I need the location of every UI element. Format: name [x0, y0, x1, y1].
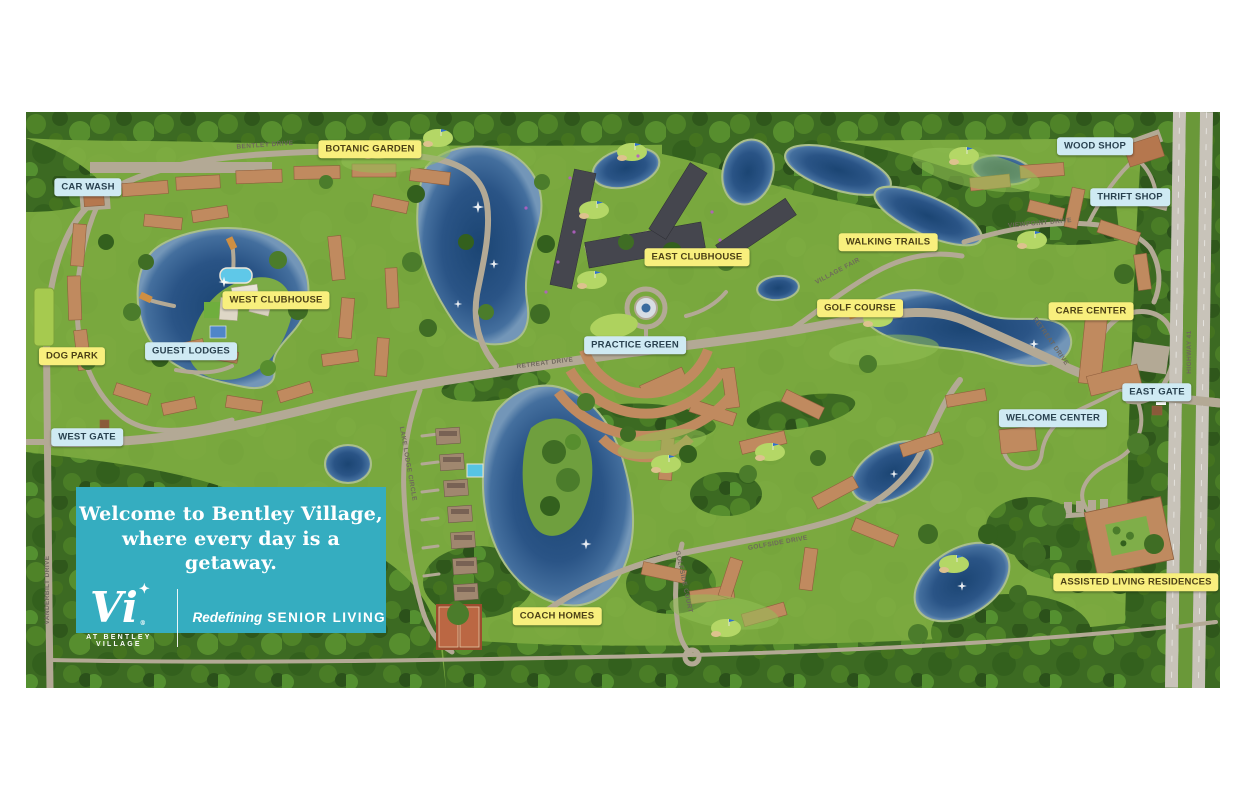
place-label: PRACTICE GREEN: [584, 336, 686, 354]
banner-headline: Welcome to Bentley Village, where every …: [76, 487, 386, 576]
place-label: THRIFT SHOP: [1090, 188, 1170, 206]
place-label: CARE CENTER: [1049, 302, 1134, 320]
banner-headline-line2: where every day is a getaway.: [76, 527, 386, 576]
place-label: GUEST LODGES: [145, 342, 237, 360]
place-label: COACH HOMES: [513, 607, 602, 625]
vi-logo: Vi ✦ ® AT BENTLEY VILLAGE: [76, 587, 162, 648]
place-label: ASSISTED LIVING RESIDENCES: [1053, 573, 1218, 591]
tagline-bold: SENIOR LIVING: [267, 610, 386, 625]
place-label: CAR WASH: [54, 178, 121, 196]
banner-bottom: Vi ✦ ® AT BENTLEY VILLAGE RedefiningSENI…: [76, 587, 386, 648]
place-label: WELCOME CENTER: [999, 409, 1107, 427]
welcome-banner: Welcome to Bentley Village, where every …: [76, 487, 386, 633]
place-label: GOLF COURSE: [817, 299, 903, 317]
vi-logo-text: Vi: [90, 583, 138, 632]
place-label: WEST GATE: [51, 428, 123, 446]
vi-logo-mark: Vi ✦ ®: [90, 587, 148, 629]
banner-divider: [177, 589, 178, 647]
tagline-italic: Redefining: [193, 610, 263, 625]
place-label: WOOD SHOP: [1057, 137, 1133, 155]
place-label: EAST CLUBHOUSE: [645, 248, 750, 266]
vi-logo-subtext: AT BENTLEY VILLAGE: [76, 634, 162, 648]
community-map: BENTLEY DRIVEVANDERBILT DRIVERETREAT DRI…: [26, 112, 1220, 688]
sparkle-icon: ✦: [139, 583, 150, 596]
banner-headline-line1: Welcome to Bentley Village,: [76, 502, 386, 527]
place-label: BOTANIC GARDEN: [318, 140, 421, 158]
place-label: WEST CLUBHOUSE: [222, 291, 329, 309]
banner-tagline: RedefiningSENIOR LIVING: [193, 610, 386, 625]
place-label: EAST GATE: [1122, 383, 1191, 401]
place-label: DOG PARK: [39, 347, 105, 365]
registered-mark: ®: [140, 621, 146, 627]
place-label: WALKING TRAILS: [839, 233, 938, 251]
page: BENTLEY DRIVEVANDERBILT DRIVERETREAT DRI…: [0, 0, 1243, 805]
